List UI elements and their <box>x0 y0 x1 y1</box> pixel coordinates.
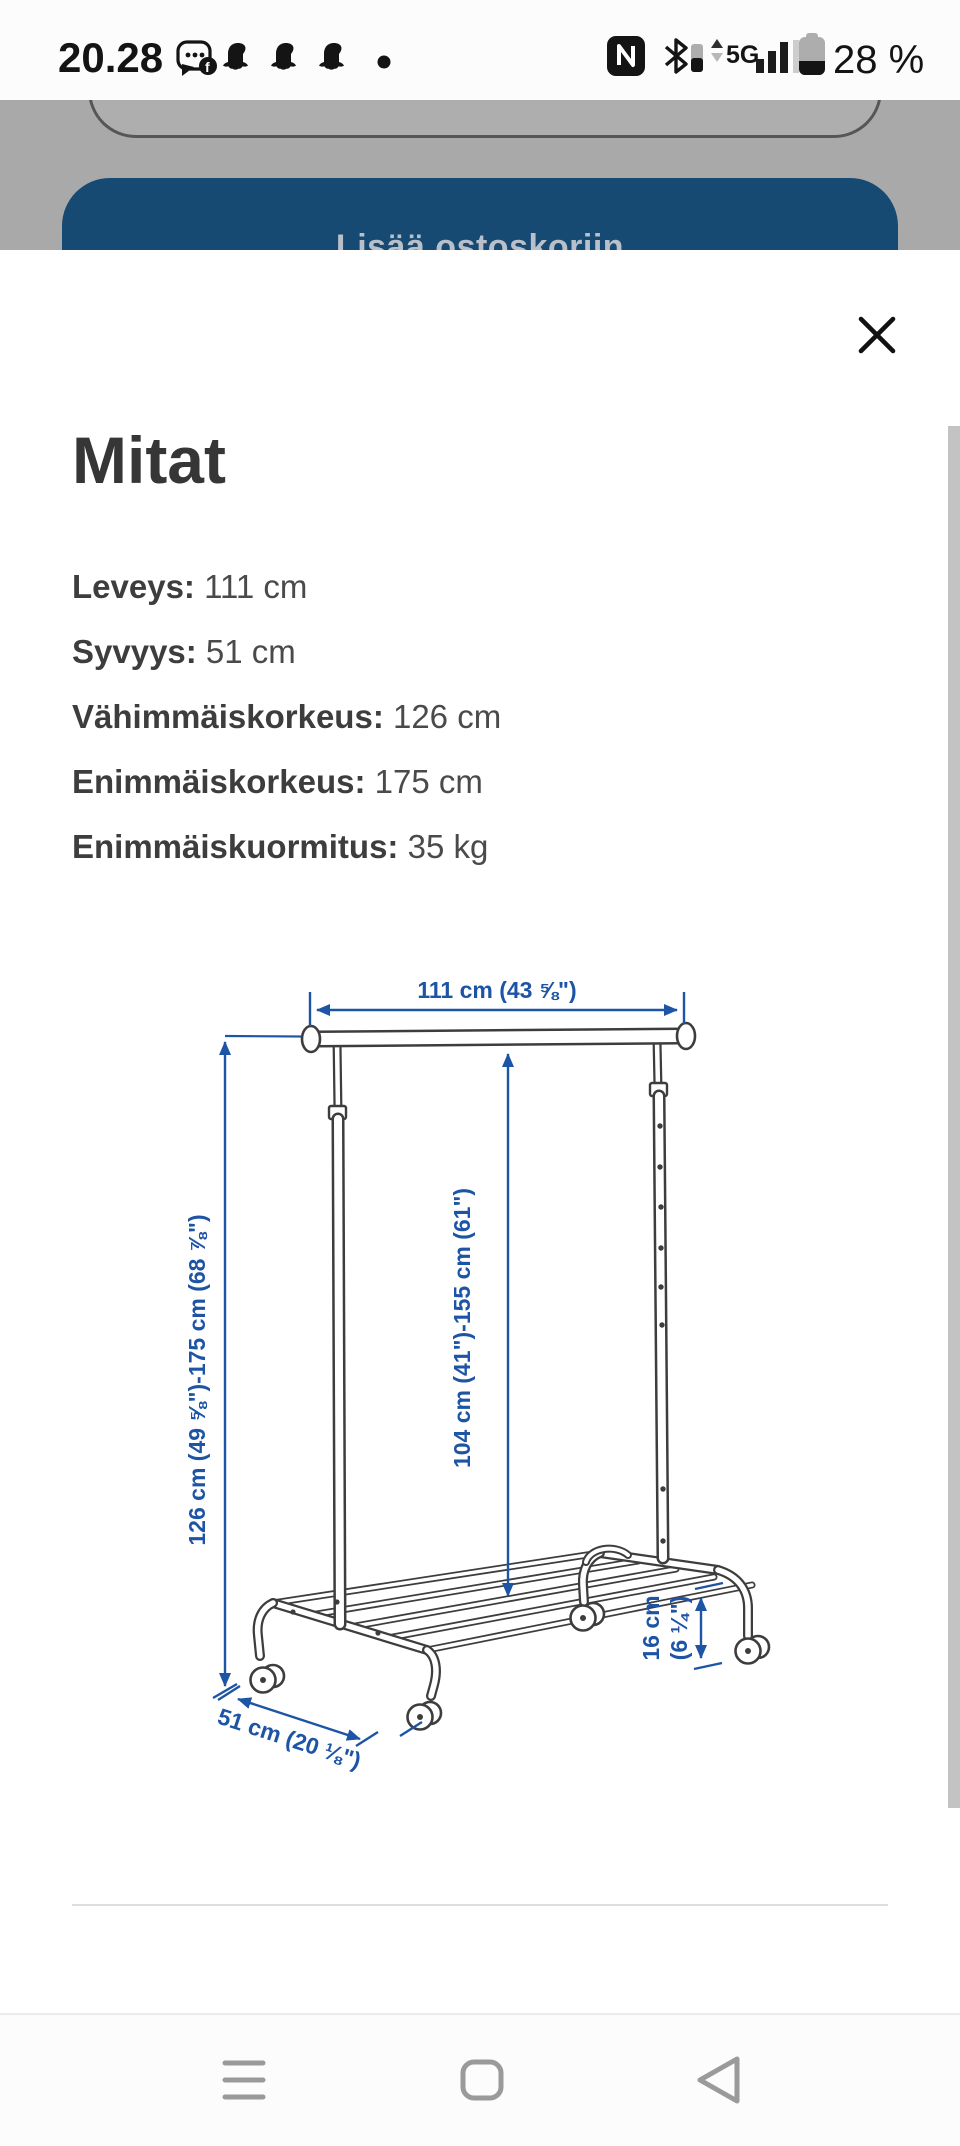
section-divider <box>72 1904 888 1906</box>
close-icon <box>855 313 899 357</box>
network-type-label: 5G <box>726 41 759 69</box>
shelf-clearance-label: 16 cm <box>638 1595 664 1660</box>
signal-bars-icon <box>756 40 799 73</box>
android-nav-bar <box>0 2013 960 2146</box>
nfc-icon <box>607 36 645 76</box>
background-outline-button <box>88 100 882 138</box>
depth-dimension-label: 51 cm (20 ⅛") <box>215 1703 365 1774</box>
scrollbar-thumb[interactable] <box>948 426 960 1808</box>
bluetooth-icon <box>666 40 686 72</box>
spec-row: Enimmäiskorkeus: 175 cm <box>72 763 501 828</box>
height-dimension-label: 126 cm (49 ⅝")-175 cm (68 ⅞") <box>184 1214 210 1545</box>
spec-row: Leveys: 111 cm <box>72 568 501 633</box>
spec-value: 126 cm <box>384 698 501 735</box>
spec-label: Vähimmäiskorkeus: <box>72 698 384 735</box>
spec-row: Vähimmäiskorkeus: 126 cm <box>72 698 501 763</box>
snapchat-icon <box>319 43 344 70</box>
snapchat-icon <box>223 43 248 70</box>
spec-value: 111 cm <box>195 568 308 605</box>
messenger-icon: f <box>178 42 217 76</box>
status-bar: 20.28 f <box>0 0 960 100</box>
shelf-clearance-label-inches: (6 ¼") <box>666 1596 692 1661</box>
spec-label: Enimmäiskorkeus: <box>72 763 365 800</box>
status-bar-icons: 20.28 f <box>0 0 960 100</box>
battery-icon <box>799 33 825 75</box>
sheet-title: Mitat <box>72 422 226 498</box>
add-to-cart-button: Lisää ostoskoriin <box>62 178 898 250</box>
rod-height-dimension-label: 104 cm (41")-155 cm (61") <box>449 1188 475 1468</box>
width-dimension-label: 111 cm (43 ⅝") <box>417 977 576 1003</box>
spec-row: Enimmäiskuormitus: 35 kg <box>72 828 501 893</box>
spec-value: 51 cm <box>197 633 296 670</box>
phone-screen: 20.28 f <box>0 0 960 2146</box>
svg-text:f: f <box>205 59 210 75</box>
spec-row: Syvyys: 51 cm <box>72 633 501 698</box>
spec-label: Syvyys: <box>72 633 197 670</box>
notification-dot-icon <box>378 56 391 69</box>
clothes-rack-dimension-diagram: 111 cm (43 ⅝") 126 cm (49 ⅝")-175 cm (68… <box>70 940 890 1820</box>
dimmed-backdrop[interactable]: Lisää ostoskoriin <box>0 100 960 250</box>
recents-button[interactable] <box>225 2063 263 2097</box>
battery-percent-label: 28 % <box>833 38 924 82</box>
spec-value: 35 kg <box>398 828 488 865</box>
close-button[interactable] <box>855 313 899 357</box>
spec-label: Enimmäiskuormitus: <box>72 828 398 865</box>
dimensions-sheet: Mitat Leveys: 111 cm Syvyys: 51 cm Vähim… <box>0 250 960 2013</box>
bluetooth-battery-icon <box>691 44 703 72</box>
home-button[interactable] <box>463 2062 501 2098</box>
add-to-cart-label: Lisää ostoskoriin <box>62 228 898 250</box>
network-arrows-icon <box>711 39 723 62</box>
status-time: 20.28 <box>58 34 163 81</box>
snapchat-icon <box>271 43 296 70</box>
spec-value: 175 cm <box>365 763 482 800</box>
back-button[interactable] <box>700 2059 737 2101</box>
spec-label: Leveys: <box>72 568 195 605</box>
spec-list: Leveys: 111 cm Syvyys: 51 cm Vähimmäisko… <box>72 568 501 893</box>
